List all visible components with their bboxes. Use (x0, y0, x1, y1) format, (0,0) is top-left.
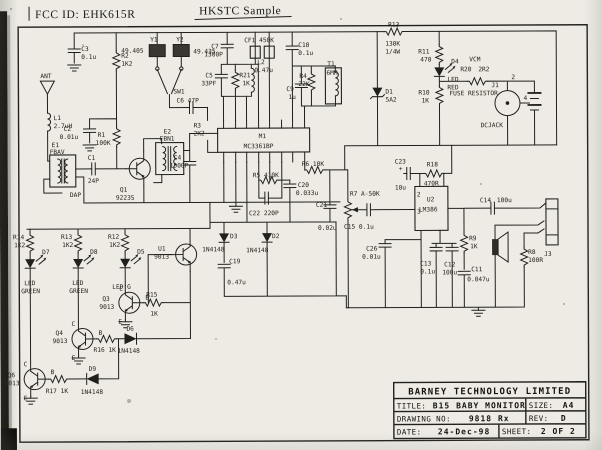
component-label: 2 (417, 191, 421, 198)
component-label: 0.01u (362, 254, 381, 261)
component-label: D3 (230, 233, 238, 240)
component-label: 1N4148 (118, 348, 141, 355)
component-label: 1K (470, 243, 478, 250)
component-label: C5 (205, 72, 213, 79)
transistor-q1 (126, 152, 151, 186)
component-label: C19 (229, 258, 240, 265)
antenna-symbol (40, 81, 54, 96)
dc-jack-j1 (495, 91, 520, 116)
component-label: 130K (385, 41, 400, 48)
component-label: B (145, 295, 149, 302)
rev-value: D (561, 414, 567, 423)
rev-label: REV: (529, 414, 549, 423)
component-label: R10 (418, 89, 429, 96)
component-label: R17 1K (46, 388, 69, 395)
drawing-title: B15 BABY MONITOR (433, 401, 526, 410)
component-label: D5 (137, 249, 145, 256)
component-label: C14 (480, 197, 491, 204)
component-label: 1300P (204, 51, 223, 58)
component-label: C10 (298, 42, 309, 49)
component-label: R7 A-50K (350, 191, 380, 198)
component-label: C3 (81, 46, 89, 53)
component-label: C21 (316, 202, 327, 209)
component-label: 1u (288, 94, 296, 101)
component-label: R21 (239, 72, 250, 79)
component-label: R5 410K (253, 172, 279, 179)
sample-watermark-text: HKSTC Sample (199, 5, 281, 17)
component-label: C15 0.1u (344, 224, 374, 231)
component-label: LM386 (419, 206, 438, 213)
component-label: 470 (420, 56, 431, 63)
component-label: R3 (194, 122, 202, 129)
component-label: 0.1u (81, 54, 96, 61)
led-d7 (25, 255, 46, 269)
component-label: R6 10K (302, 161, 325, 168)
component-label: 1K (242, 80, 250, 87)
component-label: 0.47u (254, 67, 273, 74)
date-label: DATE: (397, 427, 422, 436)
component-label: 9013 (52, 338, 67, 345)
component-label: 9013 (99, 304, 114, 311)
component-label: R12 (108, 234, 119, 241)
headphone-jack-j3 (546, 199, 558, 245)
component-label: C6 47P (176, 97, 199, 104)
component-label: 6MM (326, 70, 337, 77)
component-label: 0.1u (298, 50, 313, 57)
component-label: C (71, 321, 75, 328)
component-label: 1K2 (121, 61, 132, 68)
component-label: FUSE RESISTOR (449, 90, 498, 97)
component-label: + (399, 166, 403, 173)
title-block: BARNEY TECHNOLOGY LIMITED TITLE: B15 BAB… (394, 382, 586, 439)
component-label: C22 220P (249, 210, 279, 217)
component-label: C4 (174, 155, 182, 162)
component-label: C11 (471, 266, 482, 273)
size-label: SIZE: (529, 401, 554, 410)
component-label: R9 (469, 235, 477, 242)
component-label: 5A2 (385, 97, 396, 104)
component-label: D9 (89, 366, 97, 373)
component-label: GREEN (21, 288, 40, 295)
component-label: E2 (164, 129, 172, 136)
component-label: DCJACK (481, 122, 504, 129)
component-label: 33PF (201, 80, 216, 87)
component-label: SW1 (173, 89, 184, 96)
zener-d1 (370, 88, 384, 99)
component-label: B (51, 369, 55, 376)
led-d5 (120, 254, 141, 268)
speaker-symbol (492, 232, 508, 262)
component-label: R1 (98, 132, 106, 139)
component-label: U2 (427, 196, 435, 203)
crystal-y1 (149, 45, 165, 57)
component-label: Y2 (176, 37, 184, 44)
component-label: C9 (286, 86, 294, 93)
component-label: Q3 (102, 296, 110, 303)
channel-switch-sw1 (156, 67, 183, 71)
size-value: A4 (563, 401, 575, 410)
component-label: 0.01u (60, 134, 79, 141)
header: FCC ID: EHK615R HKSTC Sample (29, 5, 291, 21)
component-label: R18 (427, 161, 438, 168)
component-label: 1K2 (14, 242, 25, 249)
component-label: U1 (158, 246, 166, 253)
diode-d2 (262, 233, 272, 242)
component-label: R8 (528, 249, 536, 256)
component-label: 1N4148 (202, 246, 225, 253)
component-label: 2 (511, 74, 515, 81)
component-label: 1K (150, 311, 158, 318)
component-label: 470R (424, 180, 439, 187)
component-label: C1 (88, 155, 96, 162)
battery-symbol (527, 93, 541, 110)
fcc-id-text: FCC ID: EHK615R (35, 9, 135, 21)
component-label: 0.047u (467, 276, 490, 283)
component-label: 3 (417, 208, 421, 215)
component-label: R13 (388, 22, 399, 29)
component-label: 0.02u (318, 225, 337, 232)
diode-d6 (124, 333, 136, 344)
component-label: 1/4W (385, 49, 400, 56)
component-label: Q1 (120, 187, 128, 194)
component-label: D1 (385, 89, 393, 96)
component-label: 22K (298, 81, 309, 88)
component-label: 2R2 (478, 66, 489, 73)
component-label: R13 (61, 234, 72, 241)
component-label: 100R (528, 257, 543, 264)
component-label: C2 (64, 126, 72, 133)
component-label: R14 (13, 234, 24, 241)
sheet-value: 2 OF 2 (541, 427, 576, 436)
component-label: R20 (460, 66, 471, 73)
company-name: BARNEY TECHNOLOGY LIMITED (408, 387, 571, 398)
component-label: Y1 (150, 37, 158, 44)
component-label: ANT (40, 73, 51, 80)
scanned-schematic-page: FCC ID: EHK615R HKSTC Sample (0, 0, 602, 450)
component-label: FBAV (50, 149, 65, 156)
component-label: MC3361BP (244, 143, 274, 150)
component-label: 1K2 (109, 242, 120, 249)
component-label: 100K (96, 140, 111, 147)
component-label: C26 (366, 246, 377, 253)
component-label: LED (24, 280, 35, 287)
component-label: C12 (444, 261, 455, 268)
transistor-u1 (172, 237, 197, 271)
diode-d9 (87, 373, 99, 384)
component-label: C13 (420, 260, 431, 267)
component-label: 1K2 (62, 242, 73, 249)
component-label: T1 (327, 61, 335, 68)
component-label: B (98, 330, 102, 337)
component-label: E (72, 355, 76, 362)
ceramic-filter-cf1 (250, 46, 274, 58)
component-label: C (24, 361, 28, 368)
component-label: 0.1u (420, 268, 435, 275)
component-label: CF1 450K (244, 37, 274, 44)
component-label: LED (447, 76, 458, 83)
component-label: 0.47u (227, 279, 246, 286)
component-label: FBN1 (160, 136, 175, 143)
component-label: 100u (497, 197, 512, 204)
component-label: C (119, 286, 123, 293)
component-label: LED (72, 280, 83, 287)
inductor-l1 (48, 113, 51, 131)
drawing-no-label: DRAWING NO: (397, 414, 451, 423)
component-label: DAP (70, 192, 81, 199)
component-label: C23 (395, 159, 406, 166)
component-label: D4 (451, 58, 459, 65)
component-label: R11 (418, 48, 429, 55)
component-label: 4 (523, 95, 527, 102)
date-value: 24-Dec-98 (438, 427, 490, 436)
diode-d3 (219, 233, 229, 242)
component-label: 2K2 (194, 130, 205, 137)
component-label: 9013 (154, 254, 169, 261)
component-label: 9223S (116, 195, 135, 202)
ground-symbols (23, 63, 485, 404)
component-label: 9013 (5, 380, 20, 387)
component-label: 1N4148 (246, 247, 269, 254)
component-label: E (24, 395, 28, 402)
title-label: TITLE: (397, 401, 427, 410)
component-label: D8 (90, 249, 98, 256)
component-label: E1 (52, 142, 60, 149)
component-label: Q6 (8, 372, 16, 379)
component-label: J1 (491, 82, 499, 89)
component-label: C7 (211, 43, 219, 50)
crystal-y2 (173, 44, 189, 56)
component-label: L2 (257, 59, 265, 66)
component-label: L1 (54, 115, 62, 122)
component-label: R4 (299, 73, 307, 80)
component-label: 0.033u (296, 190, 319, 197)
component-label: D6 (126, 326, 134, 333)
component-label: Q4 (55, 330, 63, 337)
component-label: 1500P (170, 162, 189, 169)
sheet-label: SHEET: (502, 427, 532, 436)
component-label: D2 (272, 233, 280, 240)
drawing-no-value: 9818 Rx (469, 414, 510, 423)
component-label: M1 (259, 133, 267, 140)
led-d8 (73, 254, 94, 268)
component-label: R16 1K (94, 347, 117, 354)
component-label: 49.405 (121, 48, 144, 55)
component-label: C20 (298, 182, 309, 189)
component-label: E (118, 319, 122, 326)
component-label: 10u (395, 185, 406, 192)
component-label: GREEN (69, 288, 88, 295)
volume-pot-r7-wiper (352, 207, 358, 212)
component-label: D7 (42, 249, 50, 256)
transformer-e1 (50, 155, 76, 187)
schematic-canvas: FCC ID: EHK615R HKSTC Sample (0, 0, 602, 450)
component-label: 1N4148 (81, 389, 104, 396)
component-label: J3 (544, 251, 552, 258)
component-label: 1K (421, 97, 429, 104)
component-label: 24P (88, 178, 99, 185)
component-label: 100u (442, 269, 457, 276)
component-label: VCM (469, 56, 480, 63)
